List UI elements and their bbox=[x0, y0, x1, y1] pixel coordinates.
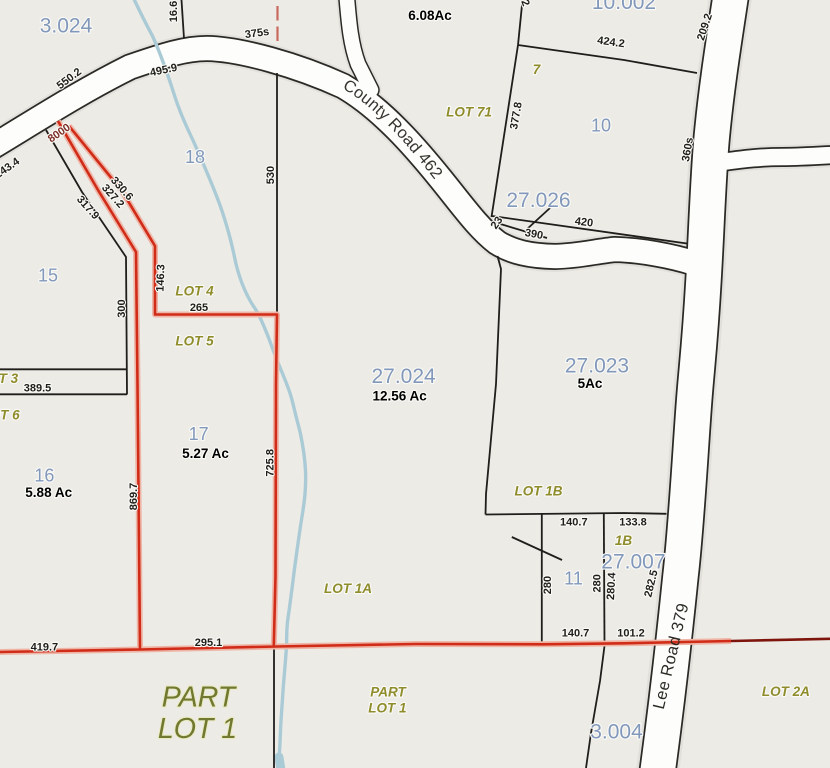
svg-text:6.08Ac: 6.08Ac bbox=[408, 8, 452, 23]
svg-text:5.88 Ac: 5.88 Ac bbox=[25, 485, 72, 500]
svg-text:280: 280 bbox=[591, 574, 603, 592]
svg-text:LOT 71: LOT 71 bbox=[446, 105, 492, 120]
svg-text:146.3: 146.3 bbox=[155, 264, 168, 292]
svg-text:280.4: 280.4 bbox=[605, 571, 618, 600]
svg-text:27.026: 27.026 bbox=[506, 189, 570, 212]
svg-text:295.1: 295.1 bbox=[195, 637, 223, 649]
svg-text:11: 11 bbox=[564, 568, 583, 588]
svg-text:27.023: 27.023 bbox=[565, 355, 629, 378]
svg-text:5Ac: 5Ac bbox=[578, 376, 603, 391]
svg-text:17: 17 bbox=[189, 424, 209, 444]
svg-text:LOT 1B: LOT 1B bbox=[514, 483, 562, 498]
svg-text:PART: PART bbox=[162, 682, 238, 714]
svg-text:16: 16 bbox=[34, 466, 54, 486]
svg-text:420: 420 bbox=[574, 215, 594, 229]
svg-text:16.6: 16.6 bbox=[168, 1, 180, 22]
svg-text:3.024: 3.024 bbox=[40, 15, 93, 38]
svg-text:15: 15 bbox=[38, 266, 58, 286]
svg-text:140.7: 140.7 bbox=[562, 628, 590, 640]
svg-text:18: 18 bbox=[185, 147, 205, 167]
svg-text:LOT 1: LOT 1 bbox=[158, 713, 237, 745]
svg-text:1B: 1B bbox=[615, 533, 633, 548]
svg-text:725.8: 725.8 bbox=[264, 449, 276, 477]
svg-text:389.5: 389.5 bbox=[24, 382, 52, 394]
svg-text:LOT 5: LOT 5 bbox=[175, 334, 214, 349]
svg-text:LOT 1A: LOT 1A bbox=[324, 581, 372, 596]
svg-text:530: 530 bbox=[265, 166, 277, 184]
svg-text:419.7: 419.7 bbox=[31, 642, 59, 654]
svg-text:300: 300 bbox=[116, 299, 128, 317]
svg-text:LOT 6: LOT 6 bbox=[0, 408, 20, 423]
svg-text:140.7: 140.7 bbox=[560, 517, 588, 529]
svg-text:27.007: 27.007 bbox=[601, 551, 665, 574]
svg-text:LOT 3: LOT 3 bbox=[0, 371, 19, 386]
svg-text:LOT 2A: LOT 2A bbox=[762, 684, 810, 699]
svg-text:10.002: 10.002 bbox=[592, 0, 656, 14]
svg-text:869.7: 869.7 bbox=[128, 483, 140, 511]
svg-text:5.27 Ac: 5.27 Ac bbox=[182, 446, 229, 461]
svg-text:LOT 1: LOT 1 bbox=[368, 700, 406, 715]
svg-text:133.8: 133.8 bbox=[619, 517, 647, 529]
svg-text:280: 280 bbox=[542, 576, 554, 594]
svg-text:265: 265 bbox=[190, 302, 208, 314]
svg-text:PART: PART bbox=[370, 685, 407, 700]
svg-text:LOT 4: LOT 4 bbox=[175, 284, 214, 299]
svg-text:12.56 Ac: 12.56 Ac bbox=[372, 389, 427, 404]
svg-text:3.004: 3.004 bbox=[590, 720, 643, 743]
svg-text:27.024: 27.024 bbox=[371, 365, 436, 388]
svg-text:101.2: 101.2 bbox=[617, 628, 645, 640]
svg-text:10: 10 bbox=[591, 116, 611, 136]
